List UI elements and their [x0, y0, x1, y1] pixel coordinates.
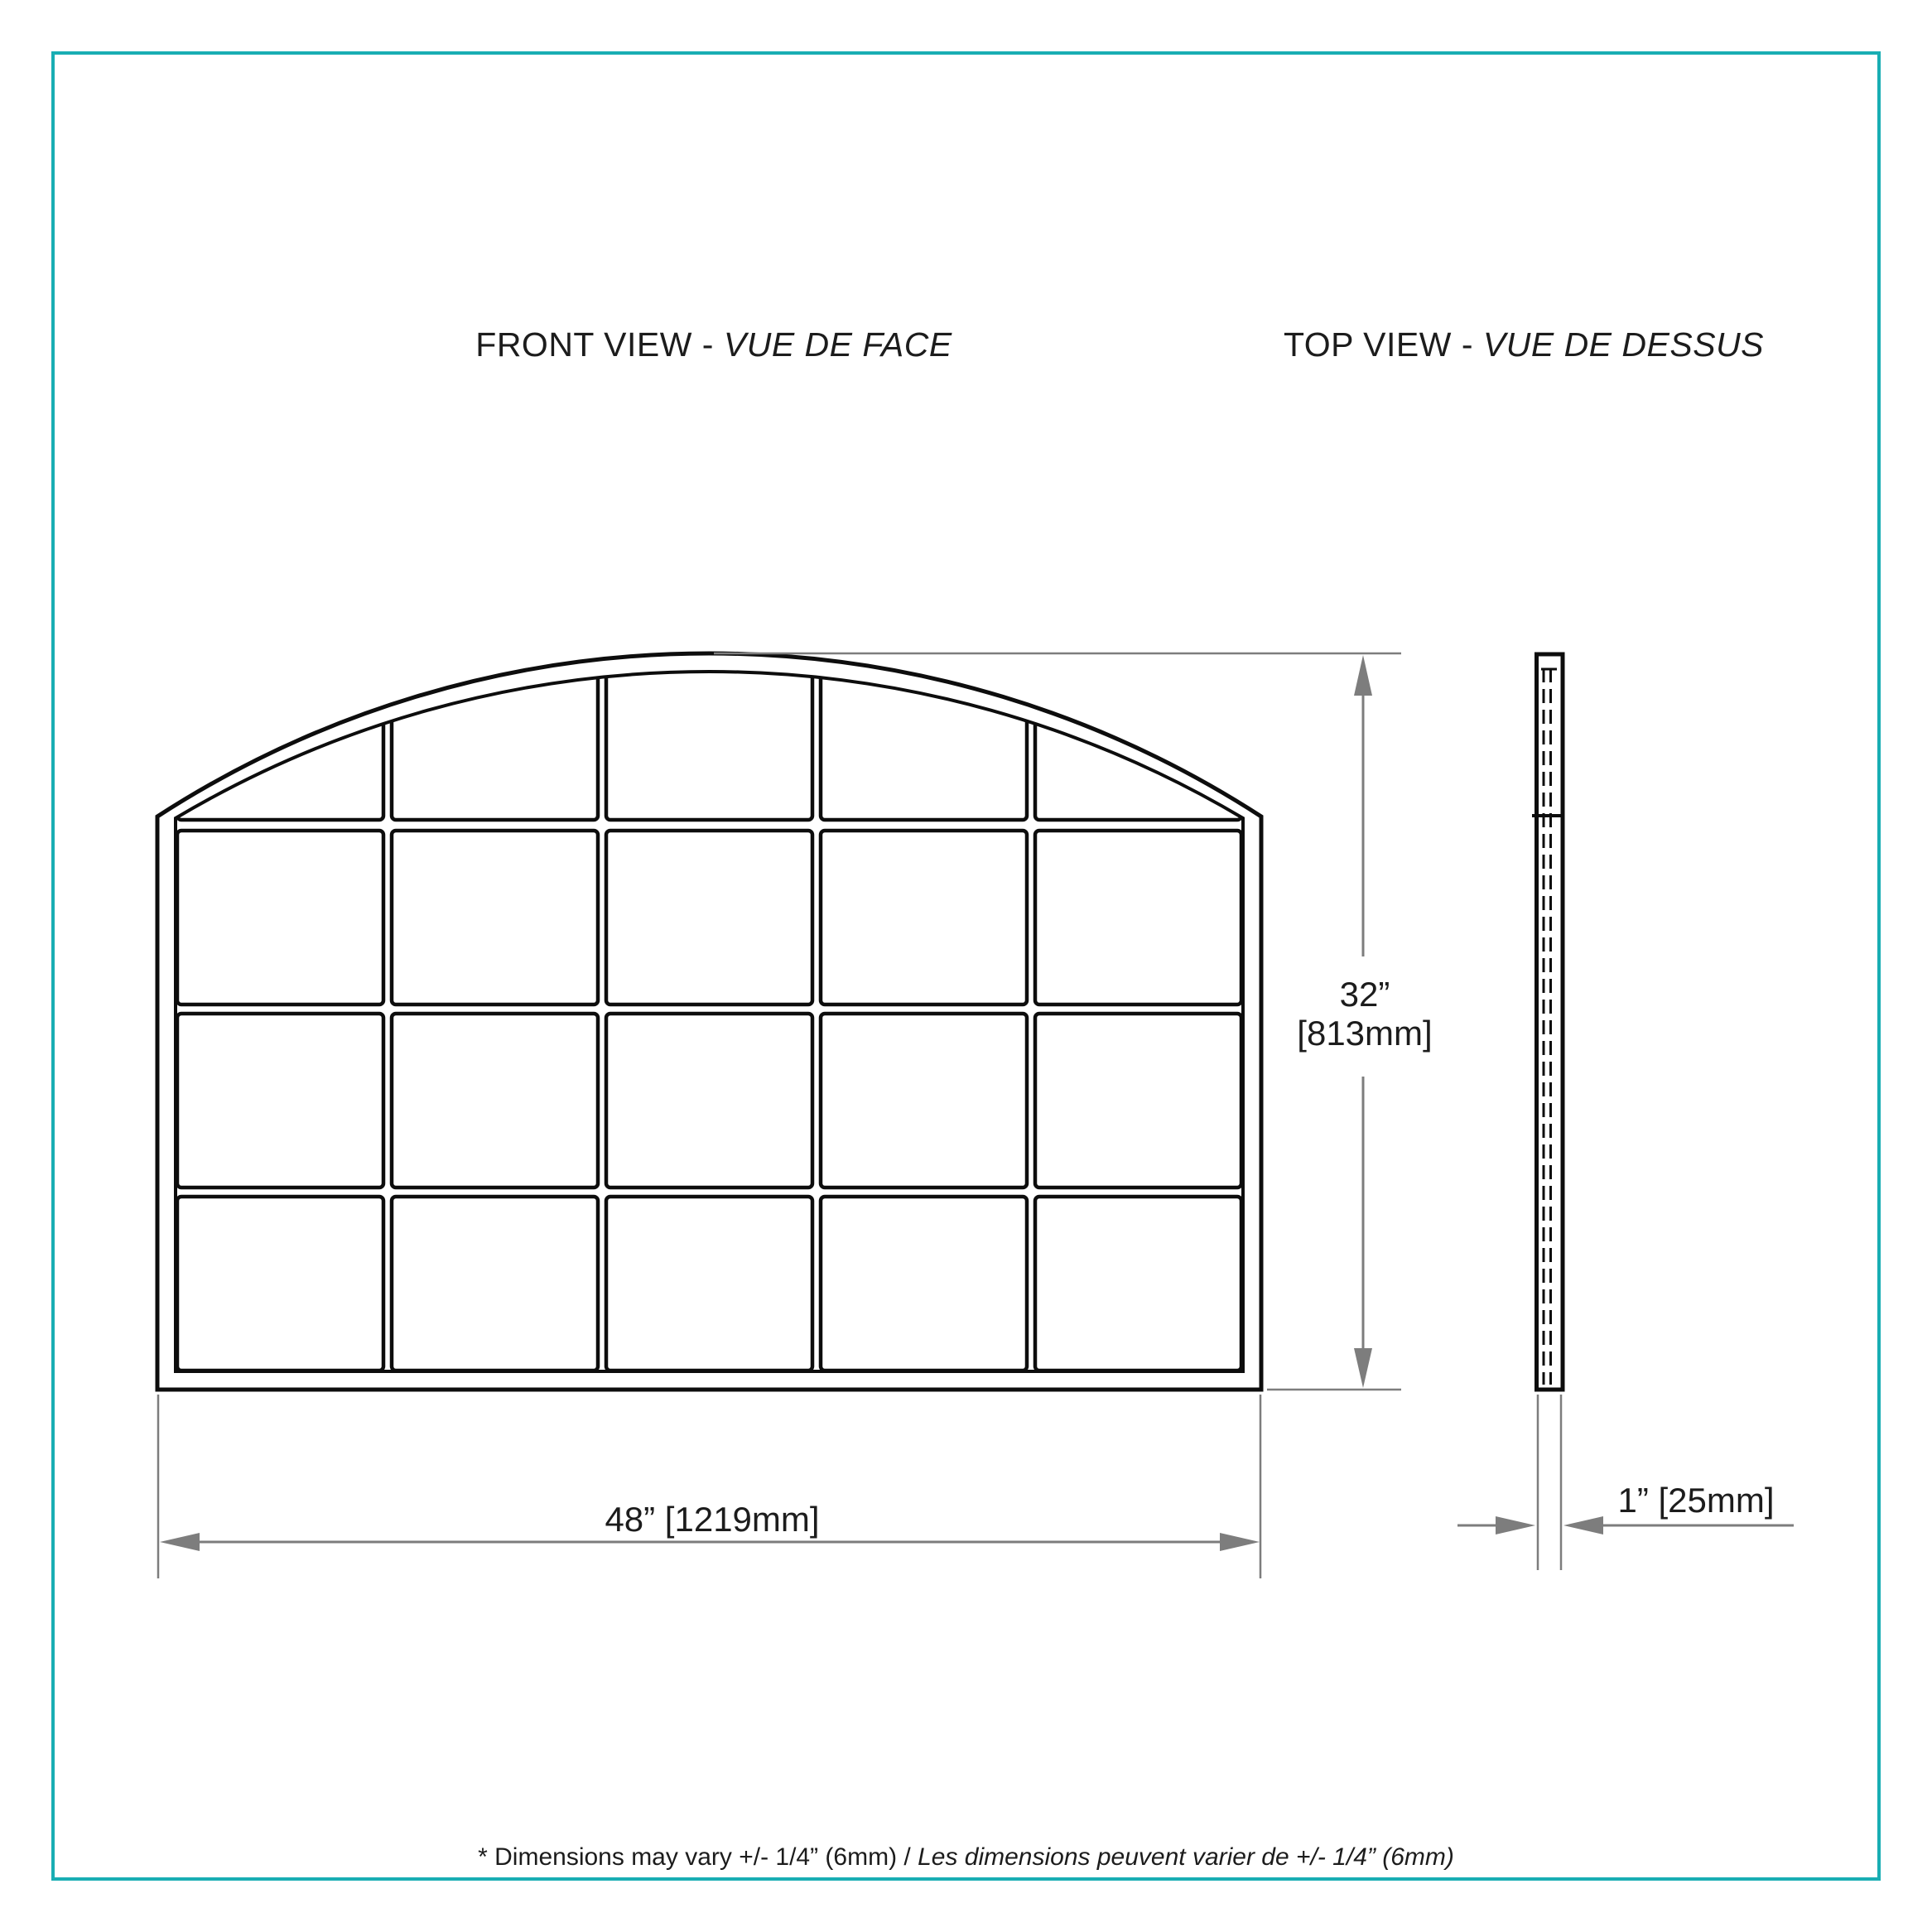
footnote-english: * Dimensions may vary +/- 1/4” (6mm) /	[478, 1843, 918, 1871]
thickness-dimension: 1” [25mm]	[1457, 1395, 1794, 1570]
outer-frame	[157, 653, 1261, 1390]
window-pane	[392, 1197, 598, 1371]
window-pane	[392, 831, 598, 1005]
inner-frame	[176, 672, 1243, 1371]
front-view-drawing	[157, 629, 1261, 1390]
spec-sheet: FRONT VIEW - VUE DE FACE TOP VIEW - VUE …	[0, 0, 1932, 1932]
dimension-arrow-right	[1220, 1533, 1260, 1551]
window-pane	[392, 629, 598, 820]
window-pane	[821, 1197, 1027, 1371]
dimension-arrow-right	[1496, 1516, 1535, 1535]
footnote: * Dimensions may vary +/- 1/4” (6mm) / L…	[51, 1843, 1881, 1872]
window-pane	[177, 831, 383, 1005]
window-pane	[392, 1014, 598, 1188]
window-pane	[821, 629, 1027, 820]
window-pane	[1035, 1014, 1241, 1188]
window-pane	[821, 1014, 1027, 1188]
dimension-arrow-up	[1354, 655, 1372, 696]
window-pane	[606, 1197, 812, 1371]
footnote-french: Les dimensions peuvent varier de +/- 1/4…	[918, 1843, 1454, 1871]
window-pane	[177, 629, 383, 820]
window-pane	[1035, 831, 1241, 1005]
top-view-drawing	[1532, 654, 1563, 1390]
height-dimension-label-inches: 32”	[1340, 975, 1390, 1014]
window-pane	[821, 831, 1027, 1005]
technical-drawing: 32” [813mm] 48” [1219mm] 1” [25mm]	[0, 0, 1932, 1932]
window-pane	[606, 831, 812, 1005]
dimension-arrow-left	[160, 1533, 200, 1551]
height-dimension-label-mm: [813mm]	[1297, 1014, 1432, 1053]
dimension-arrow-left	[1563, 1516, 1603, 1535]
dimension-arrow-down	[1354, 1348, 1372, 1388]
width-dimension: 48” [1219mm]	[158, 1395, 1260, 1578]
window-pane	[1035, 629, 1241, 820]
grid-panes	[177, 831, 1241, 1371]
window-pane	[177, 1014, 383, 1188]
thickness-dimension-label: 1” [25mm]	[1617, 1481, 1774, 1520]
window-pane	[1035, 1197, 1241, 1371]
window-pane	[606, 1014, 812, 1188]
width-dimension-label: 48” [1219mm]	[605, 1500, 819, 1539]
window-pane	[177, 1197, 383, 1371]
